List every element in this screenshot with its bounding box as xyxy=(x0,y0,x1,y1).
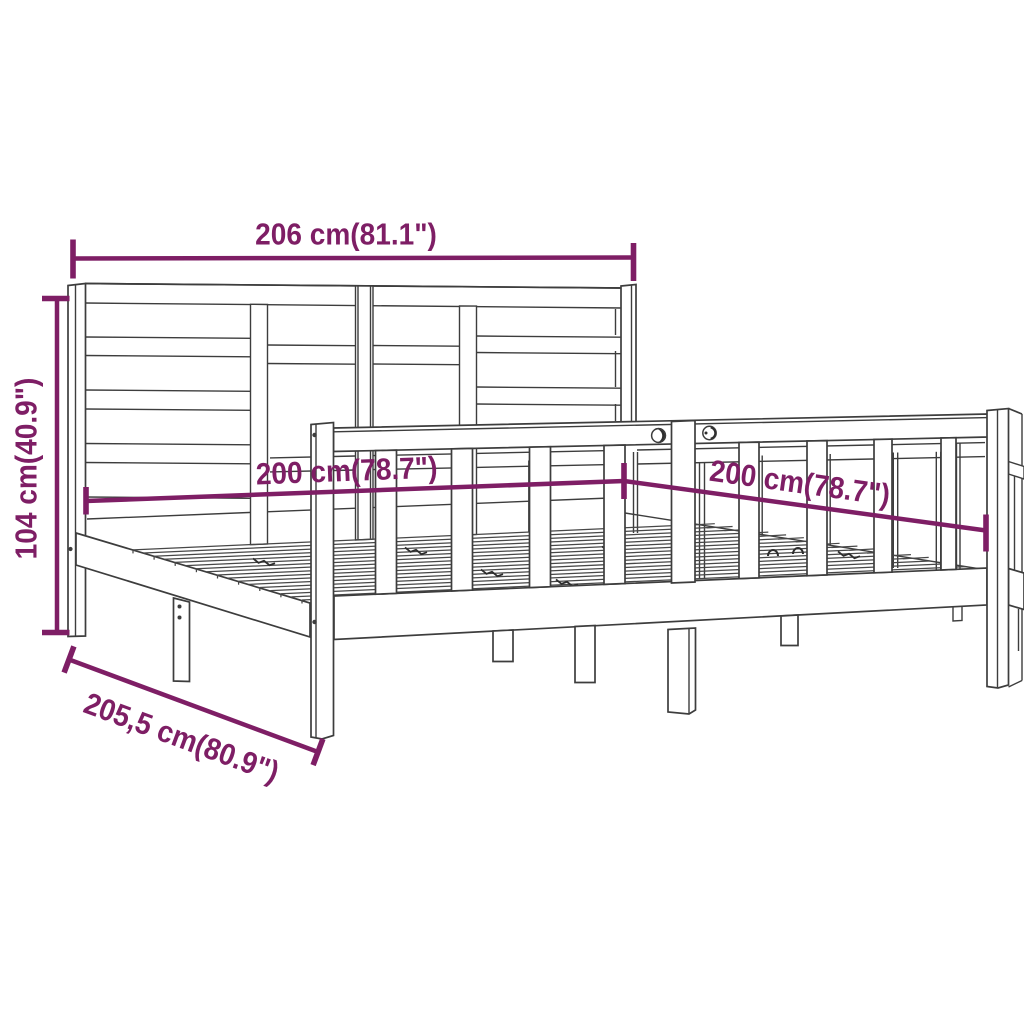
svg-text:104 cm(40.9"): 104 cm(40.9") xyxy=(9,378,43,560)
svg-text:200 cm(78.7"): 200 cm(78.7") xyxy=(255,450,438,491)
svg-text:206 cm(81.1"): 206 cm(81.1") xyxy=(255,217,437,251)
